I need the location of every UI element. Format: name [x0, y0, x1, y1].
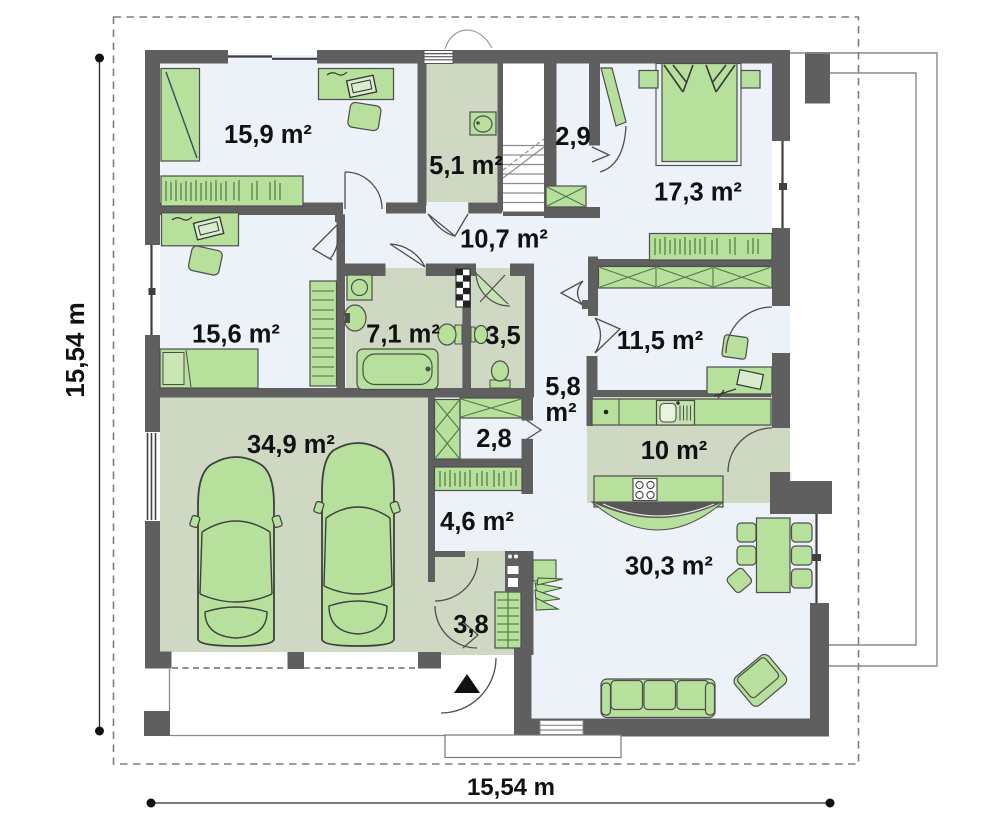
svg-text:3,8: 3,8	[453, 611, 488, 639]
svg-text:30,3 m²: 30,3 m²	[625, 553, 713, 581]
svg-text:3,5: 3,5	[485, 322, 520, 350]
svg-text:10,7 m²: 10,7 m²	[460, 226, 548, 254]
svg-text:15,9 m²: 15,9 m²	[224, 121, 312, 149]
svg-text:5,1 m²: 5,1 m²	[429, 152, 503, 180]
svg-text:10 m²: 10 m²	[641, 437, 708, 465]
svg-text:m²: m²	[545, 399, 576, 427]
svg-text:15,54 m: 15,54 m	[60, 302, 90, 397]
svg-text:2,8: 2,8	[476, 425, 511, 453]
svg-text:5,8: 5,8	[545, 373, 580, 401]
svg-text:15,6 m²: 15,6 m²	[192, 321, 280, 349]
svg-text:17,3 m²: 17,3 m²	[654, 179, 742, 207]
svg-text:11,5 m²: 11,5 m²	[617, 327, 703, 355]
svg-text:2,9: 2,9	[555, 123, 590, 151]
svg-text:34,9 m²: 34,9 m²	[247, 431, 335, 459]
svg-text:7,1 m²: 7,1 m²	[366, 321, 440, 349]
svg-text:15,54 m: 15,54 m	[467, 774, 555, 801]
svg-text:4,6 m²: 4,6 m²	[440, 508, 514, 536]
